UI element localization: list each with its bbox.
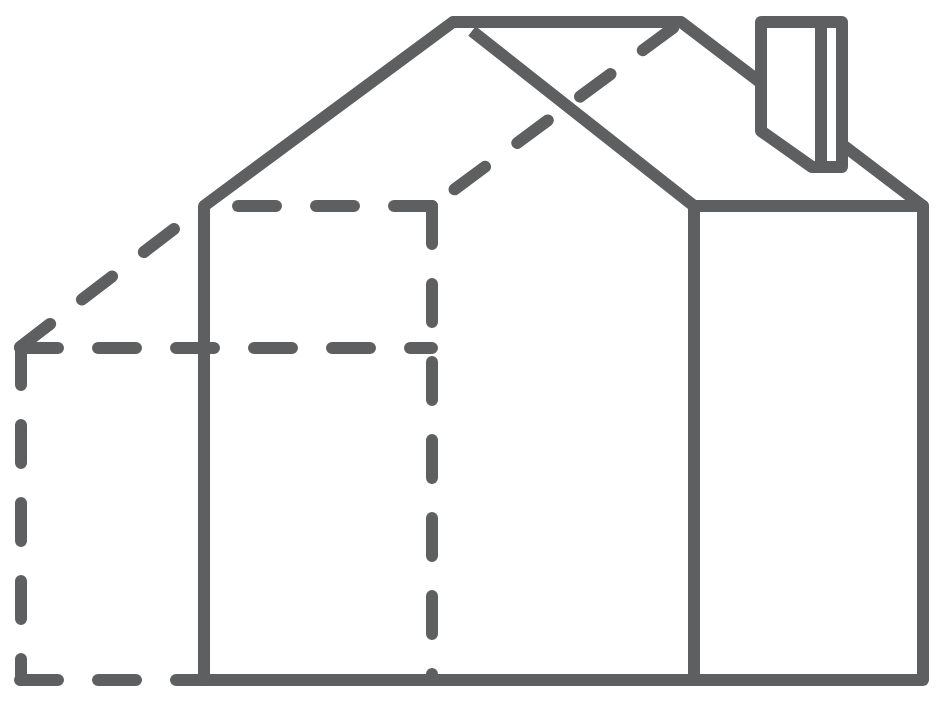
- chimney-body: [761, 22, 842, 167]
- house-drawing-canvas: [0, 0, 948, 706]
- hidden-back-roof-slope-edge: [432, 22, 681, 206]
- front-gable-right-slope-and-wall-edge: [472, 31, 694, 680]
- house-3d-line-drawing: [0, 0, 948, 706]
- hidden-left-eave-diagonal-edge: [20, 206, 204, 347]
